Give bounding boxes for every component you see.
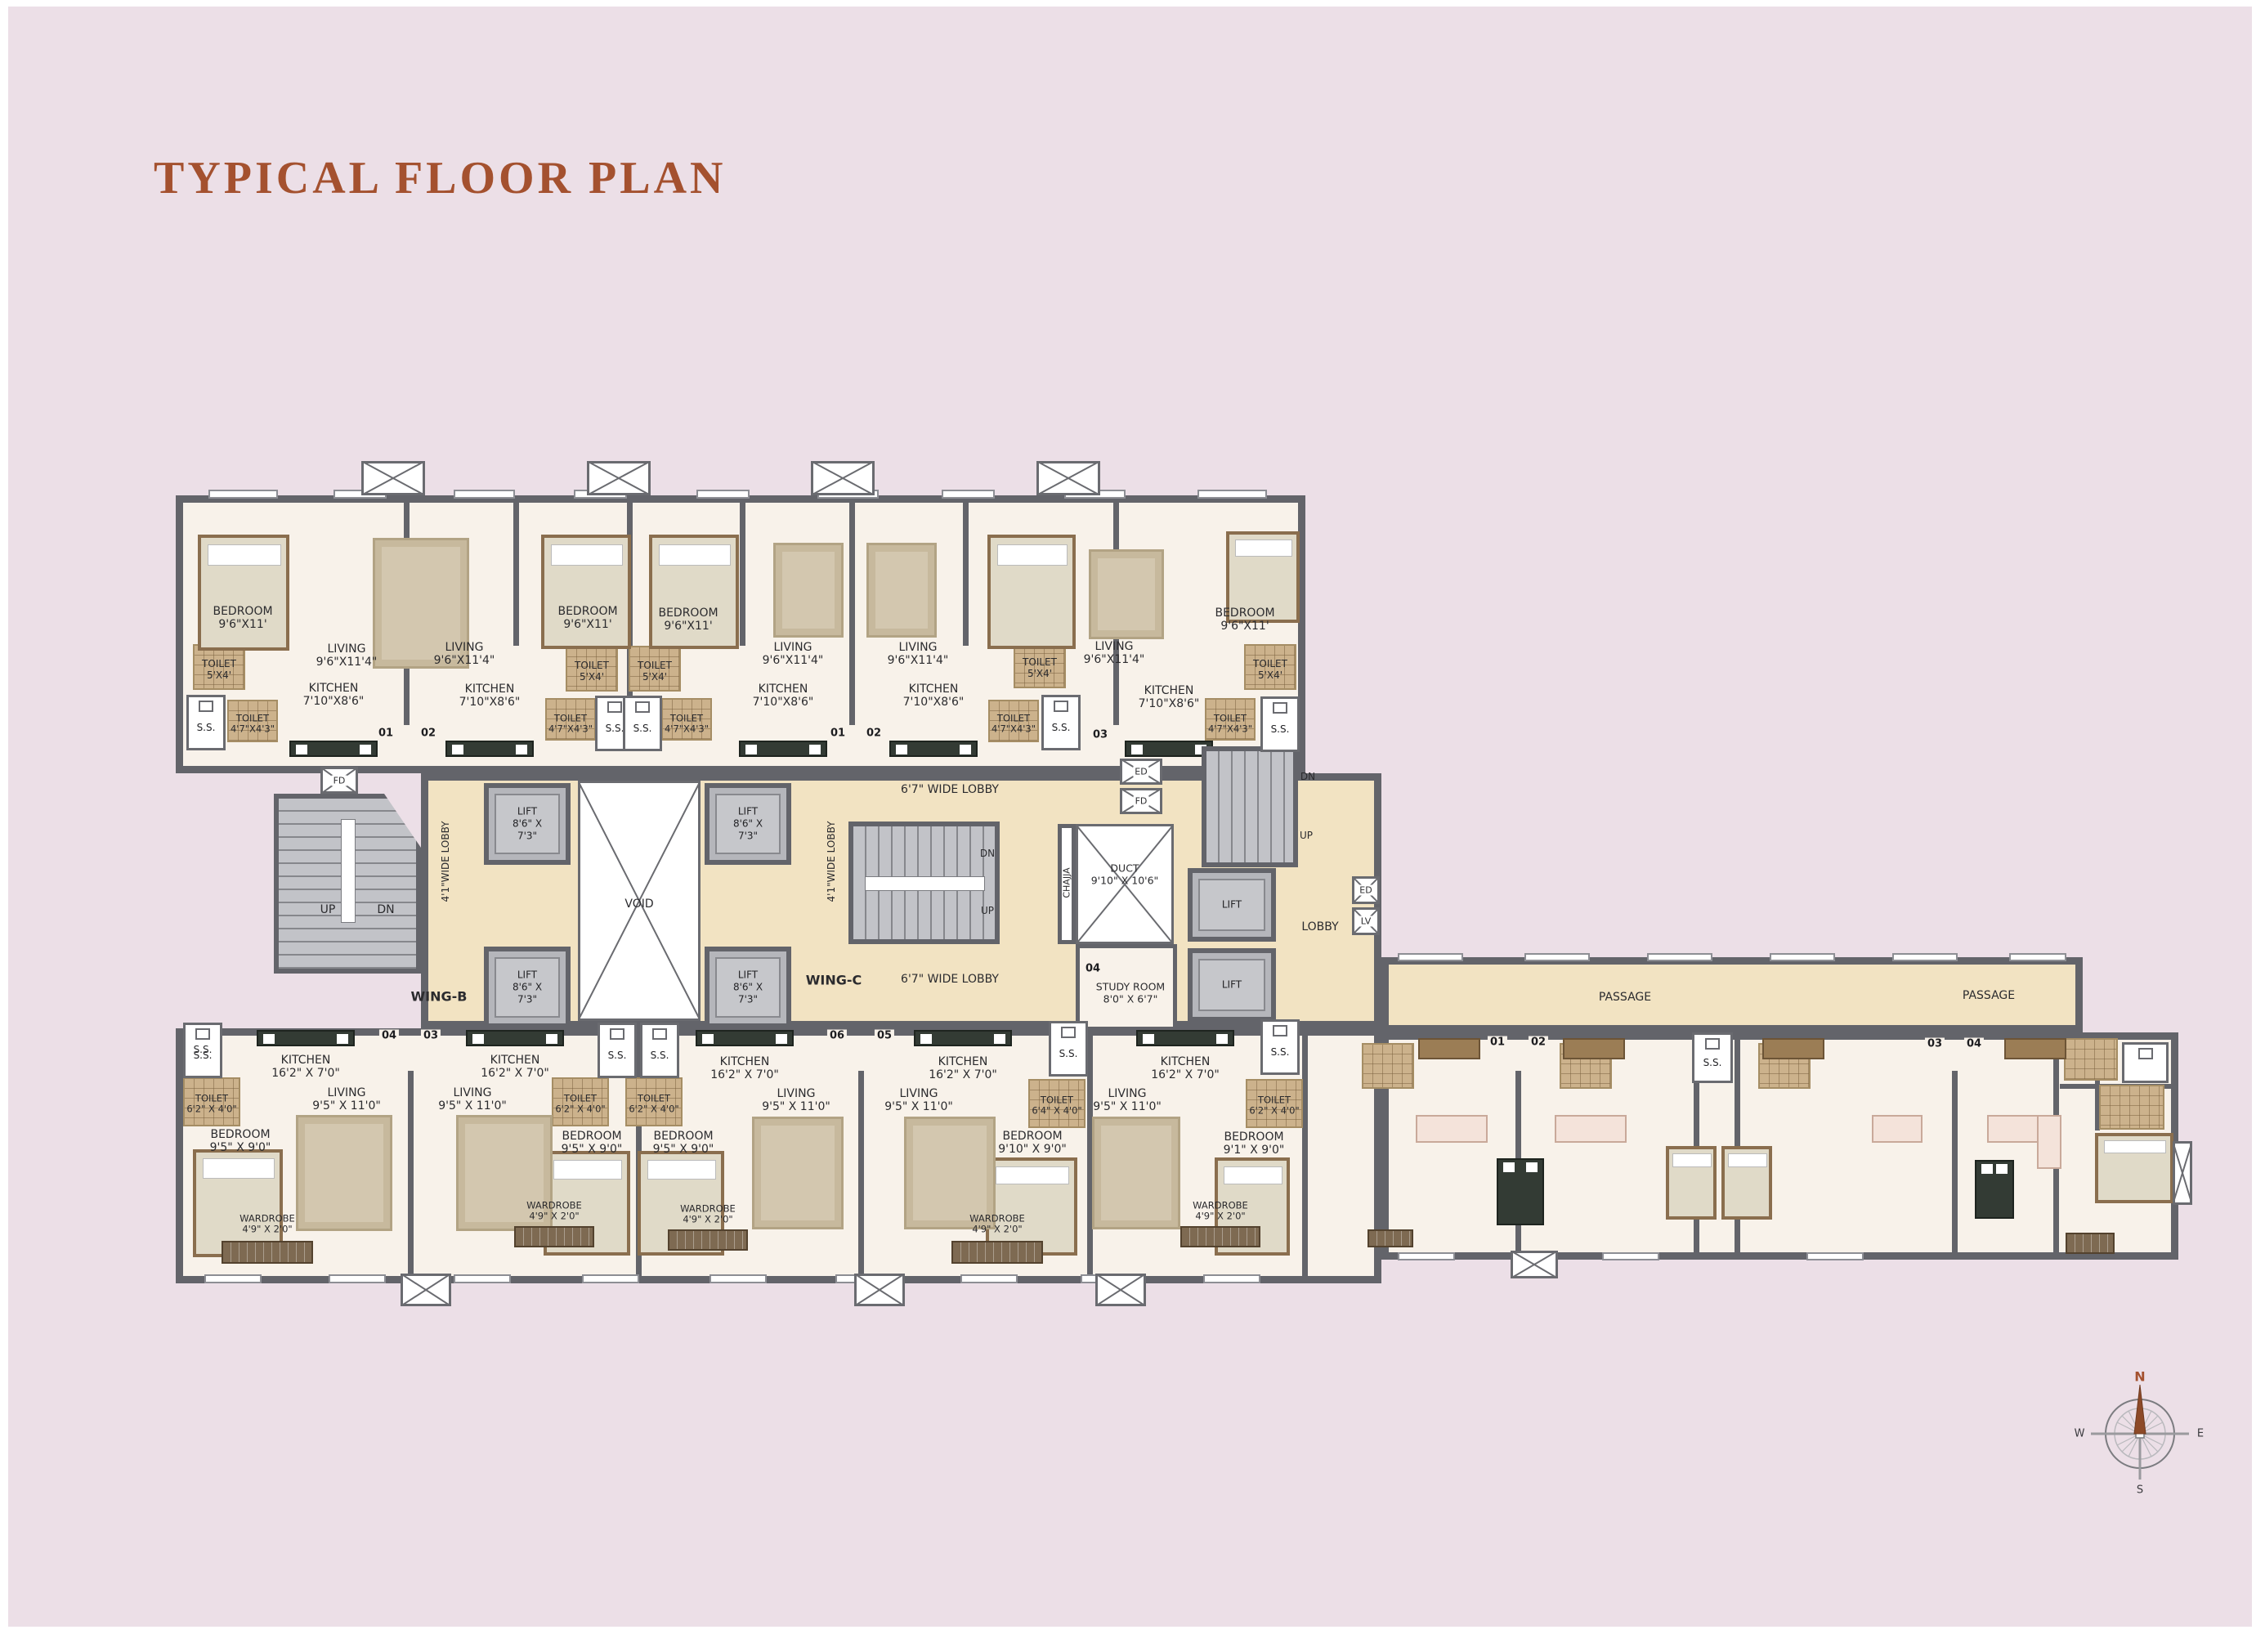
room-label: KITCHEN 7'10"X8'6" (1139, 684, 1200, 710)
room-label: PASSAGE (1963, 989, 2015, 1002)
room-label: TOILET 6'2" X 4'0" (1249, 1095, 1299, 1117)
unit-badge: 01 (1488, 1036, 1507, 1049)
room-label: LIVING 9'6"X11'4" (888, 641, 949, 667)
window (942, 490, 995, 499)
kitchen-counter (1136, 1030, 1234, 1046)
ledge-box (854, 1274, 905, 1306)
ed-shaft: ED (1352, 876, 1380, 904)
room-label: LIVING 9'5" X 11'0" (438, 1086, 507, 1113)
room-label: BEDROOM 9'6"X11' (213, 605, 272, 631)
room-label: 4'1"WIDE LOBBY (826, 822, 838, 902)
window (1892, 953, 1958, 961)
room-label: TOILET 5'X4' (1253, 659, 1287, 682)
room-label: WARDROBE 4'9" X 2'0" (680, 1204, 736, 1226)
room-label: UP (981, 906, 994, 917)
room-label: BEDROOM 9'1" X 9'0" (1224, 1130, 1285, 1157)
ledge-box (401, 1274, 451, 1306)
ss-shaft: S.S. (1260, 1019, 1300, 1075)
sofa (2037, 1115, 2061, 1169)
room-label: LIVING 9'6"X11'4" (434, 641, 495, 667)
bed (541, 535, 631, 649)
rug (773, 543, 844, 638)
ss-shaft: S.S. (623, 696, 662, 751)
window (1398, 953, 1463, 961)
room-label: DN (377, 903, 394, 916)
bed (198, 535, 289, 651)
room-label: WARDROBE 4'9" X 2'0" (526, 1201, 582, 1223)
room-label: KITCHEN 16'2" X 7'0" (710, 1055, 779, 1081)
wardrobe (1180, 1226, 1260, 1247)
compass-west-label: W (2075, 1428, 2085, 1440)
room-label: BEDROOM 9'5" X 9'0" (653, 1130, 714, 1156)
room-label: TOILET 6'4" X 4'0" (1032, 1095, 1081, 1117)
room-label: TOILET 5'X4' (638, 660, 672, 683)
room-label: KITCHEN 16'2" X 7'0" (929, 1055, 997, 1081)
unit-badge: 02 (1529, 1036, 1548, 1049)
sofa (1555, 1115, 1627, 1143)
room-label: LOBBY (1301, 920, 1338, 933)
compass-icon (2089, 1383, 2191, 1484)
window (329, 1274, 386, 1283)
room-label: BEDROOM 9'10" X 9'0" (998, 1130, 1067, 1156)
window (696, 490, 750, 499)
unit-badge: 01 (828, 728, 848, 740)
floor-plan-page: TYPICAL FLOOR PLAN FDEDFDEDLVLIFT 8'6" X… (0, 0, 2265, 1652)
sofa (1872, 1115, 1923, 1143)
kitchen-counter (257, 1030, 355, 1046)
unit-badge: 05 (875, 1030, 894, 1042)
ss-shaft: S.S. (1692, 1032, 1733, 1083)
window (709, 1274, 767, 1283)
wall (408, 1071, 414, 1277)
room-label: CHAJJA (1063, 867, 1073, 898)
compass-east-label: E (2197, 1428, 2204, 1440)
ledge-box (1095, 1274, 1146, 1306)
room-label: BEDROOM 9'6"X11' (1215, 607, 1274, 633)
room-label: UP (1300, 830, 1313, 842)
kitchen-counter (739, 741, 827, 757)
ledge-box (361, 461, 425, 495)
bed (1666, 1146, 1717, 1220)
room-label: KITCHEN 7'10"X8'6" (753, 683, 814, 709)
fd-shaft: FD (320, 767, 358, 794)
room-label: 4'1"WIDE LOBBY (441, 822, 452, 902)
wall (963, 503, 969, 646)
unit-badge: 01 (376, 728, 396, 740)
kitchen-counter (466, 1030, 564, 1046)
room-label: LIVING 9'5" X 11'0" (1093, 1087, 1162, 1113)
room-label: S.S. (194, 1045, 213, 1056)
room-label: BEDROOM 9'5" X 9'0" (210, 1128, 271, 1154)
room-label: TOILET 6'2" X 4'0" (555, 1094, 605, 1116)
lift: LIFT 8'6" X 7'3" (705, 947, 791, 1028)
room-label: KITCHEN 16'2" X 7'0" (271, 1054, 340, 1080)
room-label: TOILET 4'7"X4'3" (1208, 714, 1252, 736)
lift: LIFT 8'6" X 7'3" (484, 947, 571, 1028)
kitchen-counter (445, 741, 534, 757)
unit-badge: 03 (1090, 729, 1110, 741)
window (208, 490, 278, 499)
wall (1302, 1036, 1308, 1277)
sofa (1416, 1115, 1488, 1143)
room-label: TOILET 5'X4' (202, 659, 236, 682)
bed (987, 535, 1076, 649)
room-label: LIVING 9'5" X 11'0" (762, 1087, 830, 1113)
lift: LIFT 8'6" X 7'3" (484, 783, 571, 865)
wardrobe (222, 1241, 313, 1264)
wall (1952, 1071, 1958, 1254)
room-label: BEDROOM 9'6"X11' (557, 605, 617, 631)
room-label: KITCHEN 7'10"X8'6" (303, 682, 365, 708)
unit-badge: 04 (1083, 963, 1103, 975)
compass-south-label: S (2137, 1484, 2143, 1497)
ledge-box (2173, 1141, 2192, 1205)
room-label: TOILET 6'2" X 4'0" (629, 1094, 678, 1116)
wall (858, 1071, 864, 1277)
wardrobe (514, 1226, 594, 1247)
room-label: LIVING 9'6"X11'4" (316, 642, 378, 669)
wall (513, 503, 519, 646)
lift: LIFT (1188, 948, 1276, 1022)
unit-badge: 04 (1964, 1038, 1984, 1050)
room-label: LIVING 9'6"X11'4" (763, 641, 824, 667)
staircase (274, 794, 421, 974)
rug (1092, 1117, 1180, 1229)
ss-shaft: S.S. (598, 1023, 637, 1078)
toilet-tile (2064, 1038, 2118, 1081)
desk (1563, 1038, 1625, 1059)
compass-north-label: N (2134, 1369, 2145, 1385)
window (454, 1274, 511, 1283)
wall (849, 503, 855, 725)
ss-shaft: S.S. (1041, 695, 1081, 750)
wardrobe (951, 1241, 1043, 1264)
window (960, 1274, 1018, 1283)
room-label: TOILET 5'X4' (1023, 657, 1057, 680)
ss-shaft: S.S. (186, 695, 226, 750)
ledge-box (1036, 461, 1100, 495)
room-label: KITCHEN 16'2" X 7'0" (1151, 1055, 1220, 1081)
window (1647, 953, 1712, 961)
room-label: BEDROOM 9'5" X 9'0" (562, 1130, 623, 1156)
window (1398, 1252, 1455, 1260)
rug (866, 543, 937, 638)
room-label: WARDROBE 4'9" X 2'0" (969, 1214, 1025, 1236)
toilet-tile (1362, 1043, 1414, 1089)
desk (1762, 1038, 1824, 1059)
room-label: STUDY ROOM 8'0" X 6'7" (1096, 982, 1165, 1005)
kitchen-counter (1125, 741, 1213, 757)
ss-shaft: S.S. (640, 1023, 679, 1078)
lift: LIFT (1188, 868, 1276, 942)
room-label: DUCT 9'10" X 10'6" (1091, 863, 1159, 887)
window (582, 1274, 639, 1283)
ledge-box (587, 461, 651, 495)
room-label: 6'7" WIDE LOBBY (901, 973, 999, 986)
staircase (848, 822, 1000, 944)
ed-shaft: ED (1120, 759, 1162, 785)
bed (2095, 1133, 2173, 1203)
room-label: LIVING 9'6"X11'4" (1084, 640, 1145, 666)
room-label: KITCHEN 7'10"X8'6" (903, 683, 965, 709)
fd-shaft: FD (1120, 788, 1162, 814)
staircase (1202, 746, 1298, 867)
room-label: WING-B (411, 990, 468, 1005)
rug (296, 1115, 392, 1231)
kitchen-counter (1975, 1160, 2014, 1219)
unit-badge: 03 (421, 1030, 441, 1042)
ledge-box (1511, 1251, 1558, 1278)
room-label: WARDROBE 4'9" X 2'0" (1193, 1201, 1248, 1223)
unit-badge: 02 (864, 728, 884, 740)
room-label: KITCHEN 16'2" X 7'0" (481, 1054, 549, 1080)
bed (1721, 1146, 1772, 1220)
room-label: WING-C (806, 974, 862, 989)
ss-shaft: S.S. (1049, 1021, 1088, 1077)
rug (1089, 549, 1164, 639)
window (1770, 953, 1835, 961)
room-label: LIVING 9'5" X 11'0" (312, 1086, 381, 1113)
room-label: TOILET 4'7"X4'3" (231, 714, 275, 736)
window (454, 490, 515, 499)
room-label: 6'7" WIDE LOBBY (901, 783, 999, 796)
room-label: KITCHEN 7'10"X8'6" (459, 683, 521, 709)
unit-badge: 03 (1925, 1038, 1945, 1050)
window (1203, 1274, 1260, 1283)
ss-shaft: S.S. (1260, 696, 1300, 752)
desk (1418, 1038, 1480, 1059)
window (1602, 1252, 1659, 1260)
wall (740, 503, 745, 646)
kitchen-counter (914, 1030, 1012, 1046)
room-label: TOILET 4'7"X4'3" (548, 714, 593, 736)
desk (2004, 1038, 2066, 1059)
ss-shaft (2122, 1042, 2169, 1083)
wardrobe (668, 1229, 748, 1251)
room-label: WARDROBE 4'9" X 2'0" (239, 1214, 295, 1236)
window (1806, 1252, 1864, 1260)
unit-badge: 04 (379, 1030, 399, 1042)
room-label: BEDROOM 9'6"X11' (658, 607, 718, 633)
room-label: TOILET 4'7"X4'3" (665, 714, 709, 736)
ledge-box (811, 461, 875, 495)
wardrobe (1368, 1229, 1413, 1247)
window (2009, 953, 2066, 961)
wardrobe (2066, 1233, 2115, 1254)
room-label: DN (980, 848, 995, 860)
room-label: VOID (624, 898, 653, 911)
unit-badge: 06 (827, 1030, 847, 1042)
window (1524, 953, 1590, 961)
room-label: TOILET 6'2" X 4'0" (186, 1094, 236, 1116)
room-label: UP (320, 903, 336, 916)
kitchen-counter (1497, 1158, 1544, 1225)
room-label: TOILET 5'X4' (575, 660, 609, 683)
room-label: PASSAGE (1599, 991, 1651, 1004)
lift: LIFT 8'6" X 7'3" (705, 783, 791, 865)
window (1197, 490, 1267, 499)
kitchen-counter (289, 741, 378, 757)
room-label: TOILET 4'7"X4'3" (991, 714, 1036, 736)
unit-badge: 02 (419, 728, 438, 740)
lv-shaft: LV (1352, 907, 1380, 935)
page-title: TYPICAL FLOOR PLAN (154, 152, 727, 204)
kitchen-counter (696, 1030, 794, 1046)
kitchen-counter (889, 741, 978, 757)
room-label: LIVING 9'5" X 11'0" (884, 1087, 953, 1113)
rug (752, 1117, 844, 1229)
room-label: DN (1300, 772, 1315, 783)
toilet-tile (2099, 1085, 2164, 1130)
page-background: TYPICAL FLOOR PLAN FDEDFDEDLVLIFT 8'6" X… (8, 7, 2252, 1627)
window (204, 1274, 262, 1283)
